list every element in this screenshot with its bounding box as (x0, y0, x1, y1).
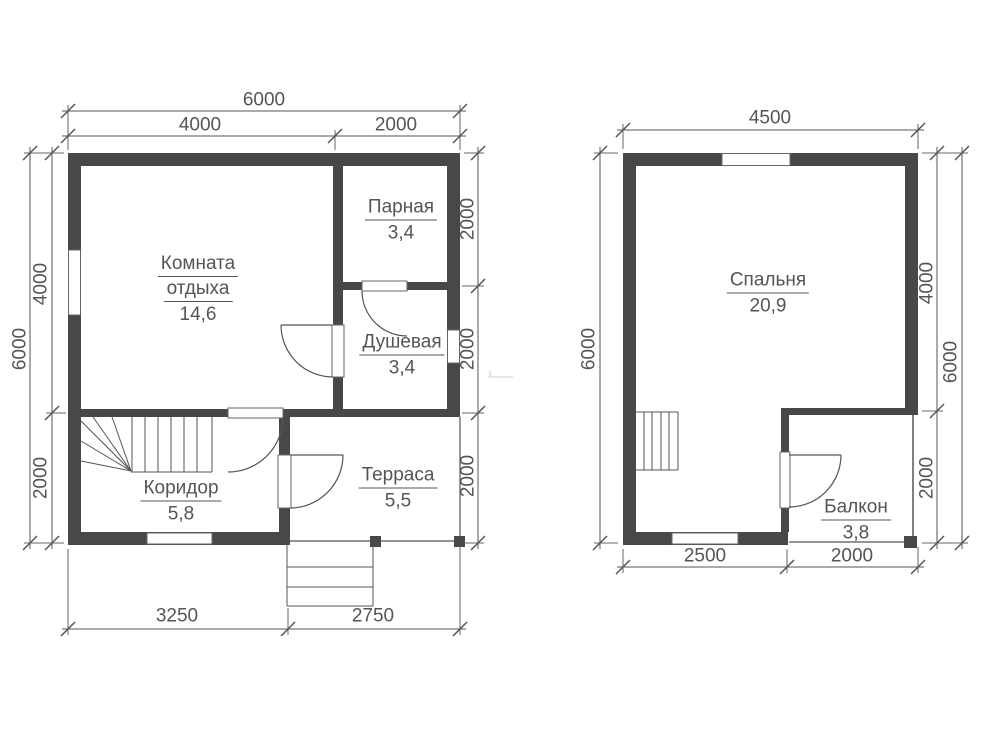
window-bottom-wall (147, 533, 212, 544)
room-label-corridor: Коридор 5,8 (140, 477, 221, 526)
dim-label-f1-left-upper: 4000 (31, 263, 52, 305)
door-arc-corridor (228, 417, 283, 472)
window-top-wall (722, 154, 790, 166)
room-name: Балкон (821, 496, 891, 521)
wall-corr-terr-a (279, 417, 290, 455)
wall-sauna-shower-a (343, 282, 362, 290)
room-label-shower: Душевая 3,4 (359, 331, 444, 380)
wall-right (447, 153, 460, 417)
door-frame-corridor (228, 408, 283, 418)
dim-label-f1-left-lower: 2000 (31, 457, 52, 499)
room-name: Комната (158, 252, 238, 277)
dim-label-f1-right-mid: 2000 (458, 328, 479, 370)
room-area: 14,6 (158, 302, 238, 326)
dim-label-f1-right-top: 2000 (458, 198, 479, 240)
dim-label-f1-top-left: 4000 (179, 115, 221, 136)
floor-plan-canvas: Комната отдыха 14,6 Парная 3,4 Душевая 3… (0, 0, 1000, 750)
room-label-sauna: Парная 3,4 (365, 196, 437, 245)
dim-label-f2-right-lower: 2000 (917, 457, 938, 499)
plan-linework (0, 0, 1000, 750)
door-frame-shower (332, 325, 344, 377)
wall-divider-upper (333, 166, 343, 325)
wall-balcony-divider-b (781, 508, 789, 532)
dim-label-f2-right-upper: 4000 (917, 262, 938, 304)
door-frame-terrace (278, 455, 291, 508)
room-name: Душевая (359, 331, 444, 356)
dim-label-f1-left-total: 6000 (10, 328, 31, 370)
door-arc-terrace (290, 455, 343, 508)
room-label-balcony: Балкон 3,8 (821, 496, 891, 545)
balcony-post (904, 536, 917, 548)
room-name: Коридор (140, 477, 221, 502)
terrace-post (454, 536, 465, 547)
room-area: 5,5 (359, 489, 438, 513)
window-left-wall (69, 250, 81, 315)
door-frame-balcony (780, 452, 790, 508)
floor1-stairs (81, 417, 212, 472)
room-area: 3,4 (365, 221, 437, 245)
floor2-stairs (636, 412, 678, 470)
room-name: Парная (365, 196, 437, 221)
floor2-windows (672, 154, 790, 545)
door-frame-sauna (362, 281, 407, 291)
wall-left (623, 153, 636, 545)
dim-label-f1-bottom-left: 3250 (156, 606, 198, 627)
room-label-rest: Комната отдыха 14,6 (158, 252, 238, 326)
wall-mid-left (81, 409, 228, 417)
floor2-walls (623, 153, 918, 545)
room-area: 5,8 (140, 502, 221, 526)
window-bottom-wall (672, 533, 738, 544)
room-area: 3,4 (359, 356, 444, 380)
wall-balcony-top (781, 408, 918, 415)
scan-artifact (488, 371, 513, 377)
room-label-bedroom: Спальня 20,9 (727, 269, 809, 318)
room-label-terrace: Терраса 5,5 (359, 464, 438, 513)
wall-left (68, 153, 81, 545)
dim-label-f2-left-total: 6000 (579, 328, 600, 370)
wall-mid-right (283, 409, 447, 417)
wall-balcony-divider-a (781, 415, 789, 452)
dim-label-f2-right-total: 6000 (941, 341, 962, 383)
terrace-post (370, 536, 381, 547)
room-name: Терраса (359, 464, 438, 489)
wall-divider-lower (333, 377, 343, 409)
dim-label-f2-bottom-right: 2000 (831, 546, 873, 567)
dim-label-f1-right-bottom: 2000 (458, 455, 479, 497)
door-arc-sauna (362, 291, 407, 336)
room-name: отдыха (164, 277, 233, 302)
wall-sauna-shower-b (407, 282, 447, 290)
room-area: 20,9 (727, 294, 809, 318)
dim-label-f2-bottom-left: 2500 (684, 546, 726, 567)
dim-label-f1-top-right: 2000 (375, 115, 417, 136)
wall-corr-terr-b (279, 508, 290, 532)
wall-top (68, 153, 460, 166)
dim-label-f2-top-total: 4500 (749, 108, 791, 129)
door-arc-shower (281, 325, 333, 377)
dim-label-f1-bottom-right: 2750 (352, 606, 394, 627)
room-area: 3,8 (821, 521, 891, 545)
floor1-entry-steps (287, 545, 373, 606)
dim-label-f1-top-total: 6000 (243, 90, 285, 111)
room-name: Спальня (727, 269, 809, 294)
